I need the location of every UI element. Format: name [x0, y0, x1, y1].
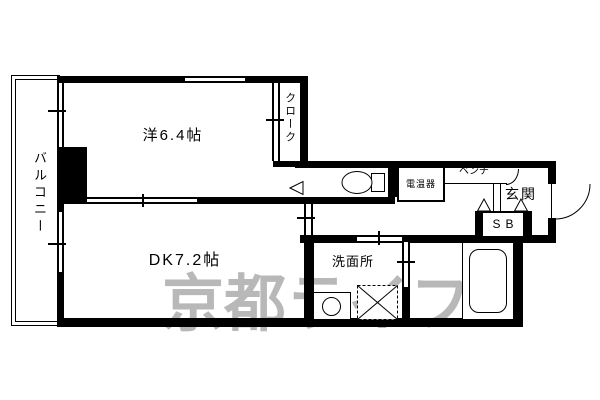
- floor-plan: 京都ライフ 電温器 SB: [0, 0, 600, 400]
- entrance-door-arc: [555, 184, 590, 219]
- toilet-tank: [372, 174, 385, 192]
- toilet-door-marker: [290, 182, 303, 195]
- balcony-label: バルコニー: [31, 151, 46, 236]
- entrance-label: 玄関: [505, 186, 537, 202]
- western-room-label: 洋6.4帖: [123, 127, 223, 144]
- shoe-box-door-marker: [478, 199, 491, 211]
- washroom-label: 洗面所: [332, 255, 374, 270]
- closet-label: クローク: [283, 92, 296, 144]
- toilet-bowl: [342, 172, 372, 194]
- bench-label: ベンチ: [459, 166, 489, 178]
- dk-label: DK7.2帖: [130, 252, 240, 270]
